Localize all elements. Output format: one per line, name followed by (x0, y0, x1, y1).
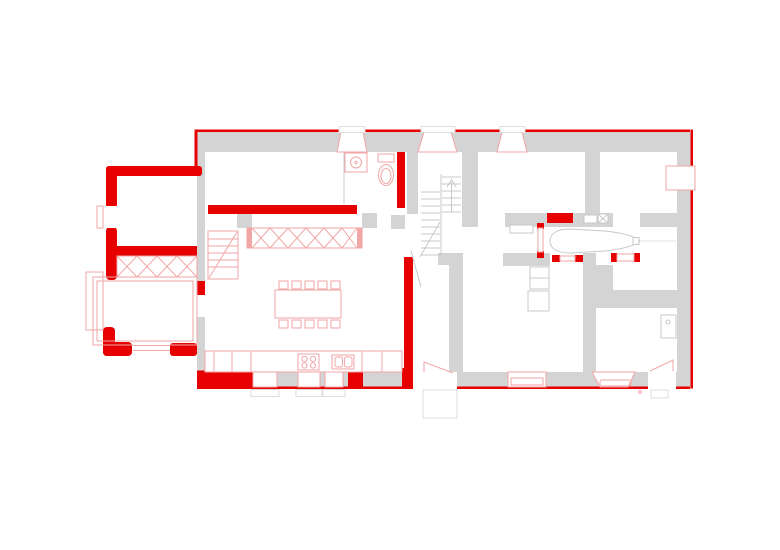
kitchen-counter (205, 351, 402, 372)
staircase (420, 174, 461, 257)
stair-west-wall (407, 152, 418, 214)
annex-window-gap (103, 206, 117, 228)
dining-chairs-bottom (279, 320, 340, 328)
floor-plan-drawing (0, 0, 780, 550)
annex-top-red-wall (106, 166, 202, 176)
room-c-west-wall (449, 253, 463, 372)
kitchen-sink (332, 355, 354, 369)
stove-tip (633, 238, 639, 245)
corridor-stove (550, 229, 676, 253)
hatch-band-kitchen (247, 228, 362, 248)
top-window-2 (418, 132, 457, 152)
stair-up-arrow (447, 180, 456, 213)
bottom-wall-red-left (197, 372, 253, 388)
dining-set (275, 281, 341, 328)
red-door-jamb-east-1 (611, 253, 617, 262)
wall-niche (584, 215, 597, 223)
bathroom-east-red-wall (397, 152, 405, 208)
kitchen-window-1 (253, 372, 277, 387)
red-outline-west (195, 130, 198, 168)
cooktop (298, 354, 319, 370)
top-window-1 (337, 132, 367, 152)
new-door-panel-2 (617, 254, 634, 261)
stove-body (550, 229, 640, 253)
kitchen-window-3 (325, 372, 343, 387)
toilet (378, 154, 394, 186)
annex-room-outline (86, 272, 197, 355)
dining-table (275, 290, 341, 318)
room-c-furniture (528, 267, 549, 311)
column-stub-1 (237, 213, 252, 228)
annex-sw-red-stub-h (103, 342, 132, 356)
top-window-3 (497, 132, 527, 152)
top-window-2-exterior-sill (421, 127, 455, 133)
red-door-jamb-east-2 (634, 253, 640, 262)
dining-chairs-top (279, 281, 340, 289)
kitchen-window-2-sill (296, 390, 322, 397)
rear-door-gap (648, 372, 676, 390)
rear-door-mark (639, 391, 642, 394)
kitchen-window-3-sill (323, 390, 345, 397)
room-c-east-wall (583, 253, 596, 372)
column-stub-3 (391, 215, 405, 229)
rear-door-swing (650, 360, 673, 371)
stair-east-wall (462, 152, 478, 227)
bathroom-sink (345, 153, 367, 172)
right-wall-window (666, 166, 695, 190)
floor-plan (0, 0, 780, 550)
annex-window-sill (97, 206, 103, 228)
top-window-3-exterior-sill (500, 127, 525, 133)
new-partition-line (538, 228, 543, 252)
new-construction-red (103, 130, 693, 390)
hatch-band-annex (117, 256, 197, 277)
column-stub-2 (362, 213, 377, 228)
threshold-niche (510, 225, 533, 233)
kitchen-window-1-sill (251, 390, 279, 397)
top-window-1-exterior-sill (339, 127, 365, 133)
red-wall-infill (547, 213, 573, 223)
wall-shaft-box (598, 214, 608, 223)
bathroom (344, 152, 394, 204)
red-patch-4 (575, 255, 583, 262)
bottom-wall-red-mid (348, 372, 363, 388)
red-patch-3 (552, 255, 560, 262)
red-beam (208, 205, 357, 214)
room-b-bottom-wall (640, 213, 677, 227)
annex-south-window-gap (133, 343, 170, 355)
annex-mid-red-wall (106, 246, 197, 256)
kitchen-east-red-wall (404, 257, 413, 370)
kitchen-window-2 (298, 372, 320, 387)
new-door-panel-1 (560, 256, 575, 261)
rear-door-step (651, 390, 668, 398)
entrance-door-gap (413, 372, 457, 390)
room-ab-divider-wall (585, 152, 600, 213)
winder-stair (208, 231, 238, 279)
annex-left-red-wall-upper (106, 166, 117, 208)
west-wall-lower (197, 317, 205, 372)
room-d-north-wall (596, 290, 677, 308)
stair-treads-left (421, 192, 440, 255)
room-d-fixture (661, 315, 676, 338)
entrance-door-swing (424, 362, 453, 373)
red-door-jamb-west (197, 281, 205, 295)
east-room-connector-wall (596, 265, 613, 290)
entrance-stoop (423, 390, 457, 418)
